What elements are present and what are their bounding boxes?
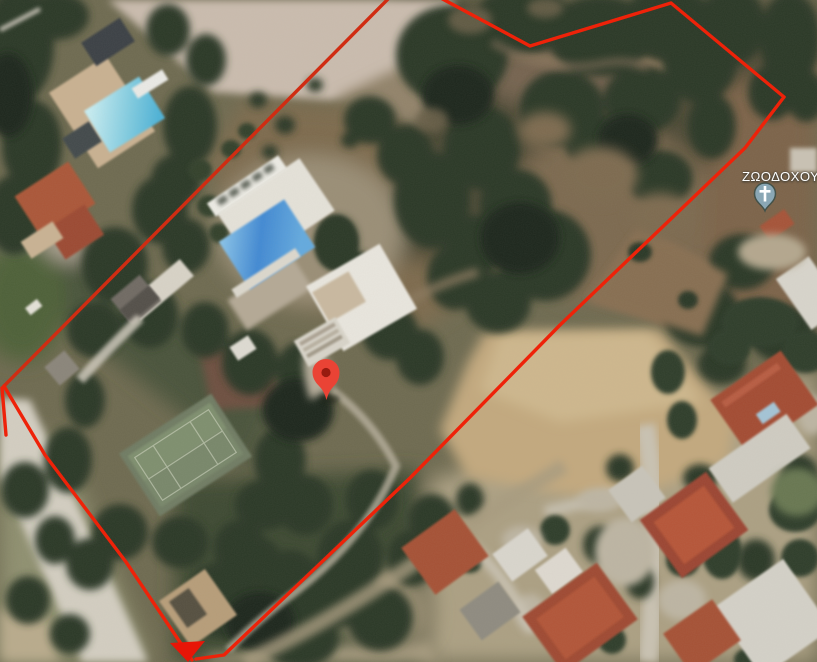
svg-text:ΖΩΟΔΟΧΟΥ: ΖΩΟΔΟΧΟΥ <box>742 169 817 184</box>
